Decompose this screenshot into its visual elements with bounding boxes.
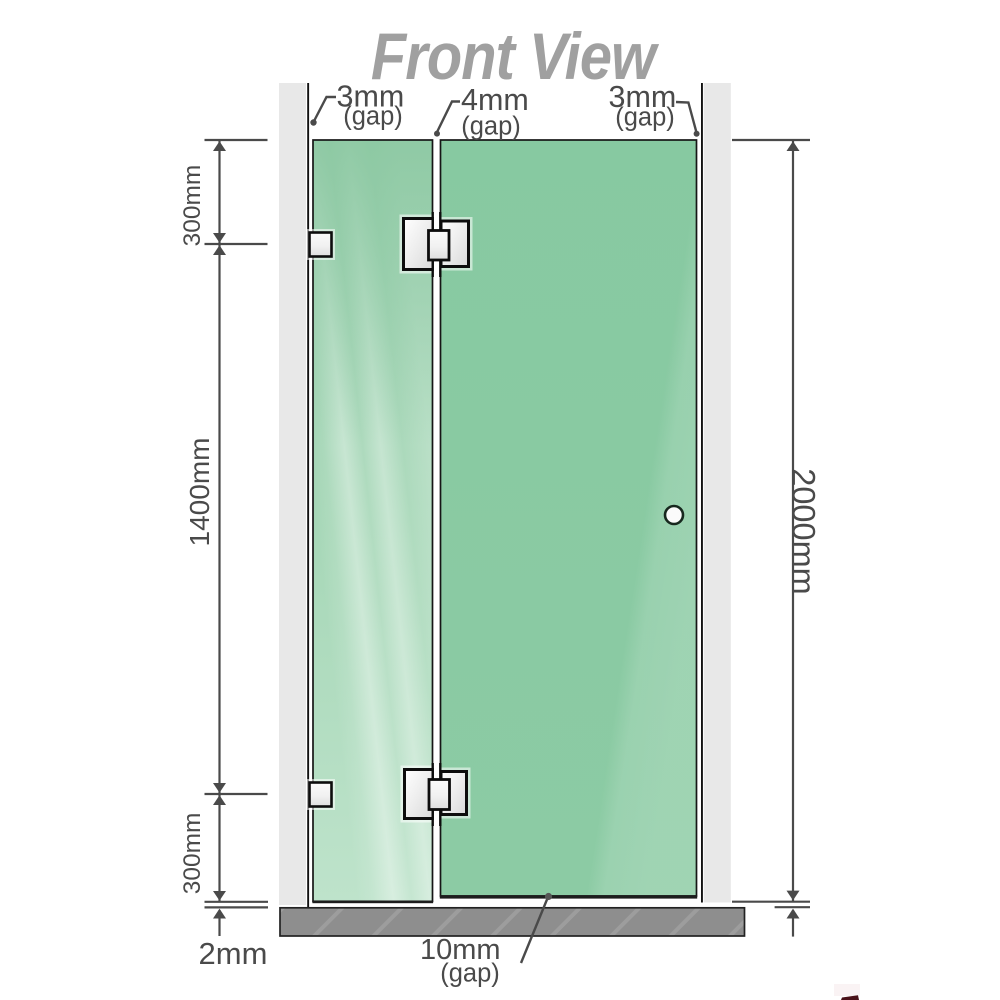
svg-text:300mm: 300mm xyxy=(179,813,206,895)
svg-text:(gap): (gap) xyxy=(461,113,521,141)
svg-text:1400mm: 1400mm xyxy=(184,438,215,547)
svg-text:(gap): (gap) xyxy=(440,960,500,988)
svg-text:2000mm: 2000mm xyxy=(786,468,822,594)
svg-text:300mm: 300mm xyxy=(179,165,206,247)
svg-text:2mm: 2mm xyxy=(199,936,268,971)
svg-text:(gap): (gap) xyxy=(615,104,675,132)
svg-text:(gap): (gap) xyxy=(343,103,403,131)
